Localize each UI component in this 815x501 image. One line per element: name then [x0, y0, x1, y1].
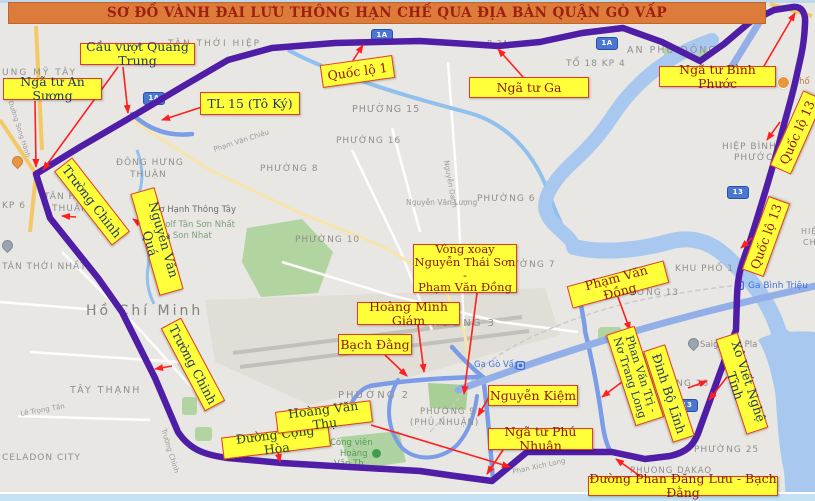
- label-hoang-minh-giam: Hoàng Minh Giám: [357, 302, 460, 325]
- label-duong-phan-dang-luu-bach-dang: Đường Phan Đăng Lưu - Bạch Đằng: [588, 476, 778, 496]
- label-nga-tu-binh-phuoc: Ngã tư Bình Phước: [659, 66, 776, 87]
- label-quoc-lo-13-north: Quốc lộ 13: [770, 90, 815, 174]
- label-quoc-lo-13-south: Quốc lộ 13: [742, 196, 790, 277]
- title-bar: SƠ ĐỒ VÀNH ĐAI LƯU THÔNG HẠN CHẾ QUA ĐỊA…: [8, 2, 766, 24]
- label-quoc-lo-1: Quốc lộ 1: [320, 55, 395, 88]
- label-nguyen-kiem: Nguyễn Kiệm: [488, 385, 578, 406]
- label-truong-chinh-north: Trường Chinh: [54, 157, 130, 245]
- label-vong-xoay-nguyen-thai-son: Vòng xoayNguyễn Thái Sơn -Phạm Văn Đồng: [413, 244, 517, 293]
- traffic-ring-diagram: TÂN THỚI HIỆPUNG MỸ TÂYP 3ATỔ 18 KP 4AN …: [0, 0, 815, 501]
- label-nguyen-van-qua: Nguyễn Văn Quá: [130, 187, 183, 296]
- label-pham-van-dong: Phạm Văn Đồng: [567, 260, 670, 308]
- callout-label-layer: Cầu vượt Quang TrungNgã tư An SươngTL 15…: [0, 0, 815, 501]
- label-cau-vuot-quang-trung: Cầu vượt Quang Trung: [80, 43, 195, 65]
- label-xo-viet-nghe-tinh: Xô Viết Nghệ Tĩnh: [716, 332, 769, 434]
- label-tl-15-to-ky: TL 15 (Tô Ký): [200, 92, 300, 115]
- label-bach-dang: Bạch Đằng: [338, 334, 412, 355]
- label-truong-chinh-south: Trường Chinh: [161, 318, 225, 412]
- label-nga-tu-ga: Ngã tư Ga: [469, 77, 589, 98]
- label-nga-tu-phu-nhuan: Ngã tư Phú Nhuận: [488, 428, 593, 450]
- label-nga-tu-an-suong: Ngã tư An Sương: [3, 78, 102, 100]
- page-title: SƠ ĐỒ VÀNH ĐAI LƯU THÔNG HẠN CHẾ QUA ĐỊA…: [107, 5, 667, 21]
- label-hoang-van-thu: Hoàng Văn Thụ: [275, 400, 373, 434]
